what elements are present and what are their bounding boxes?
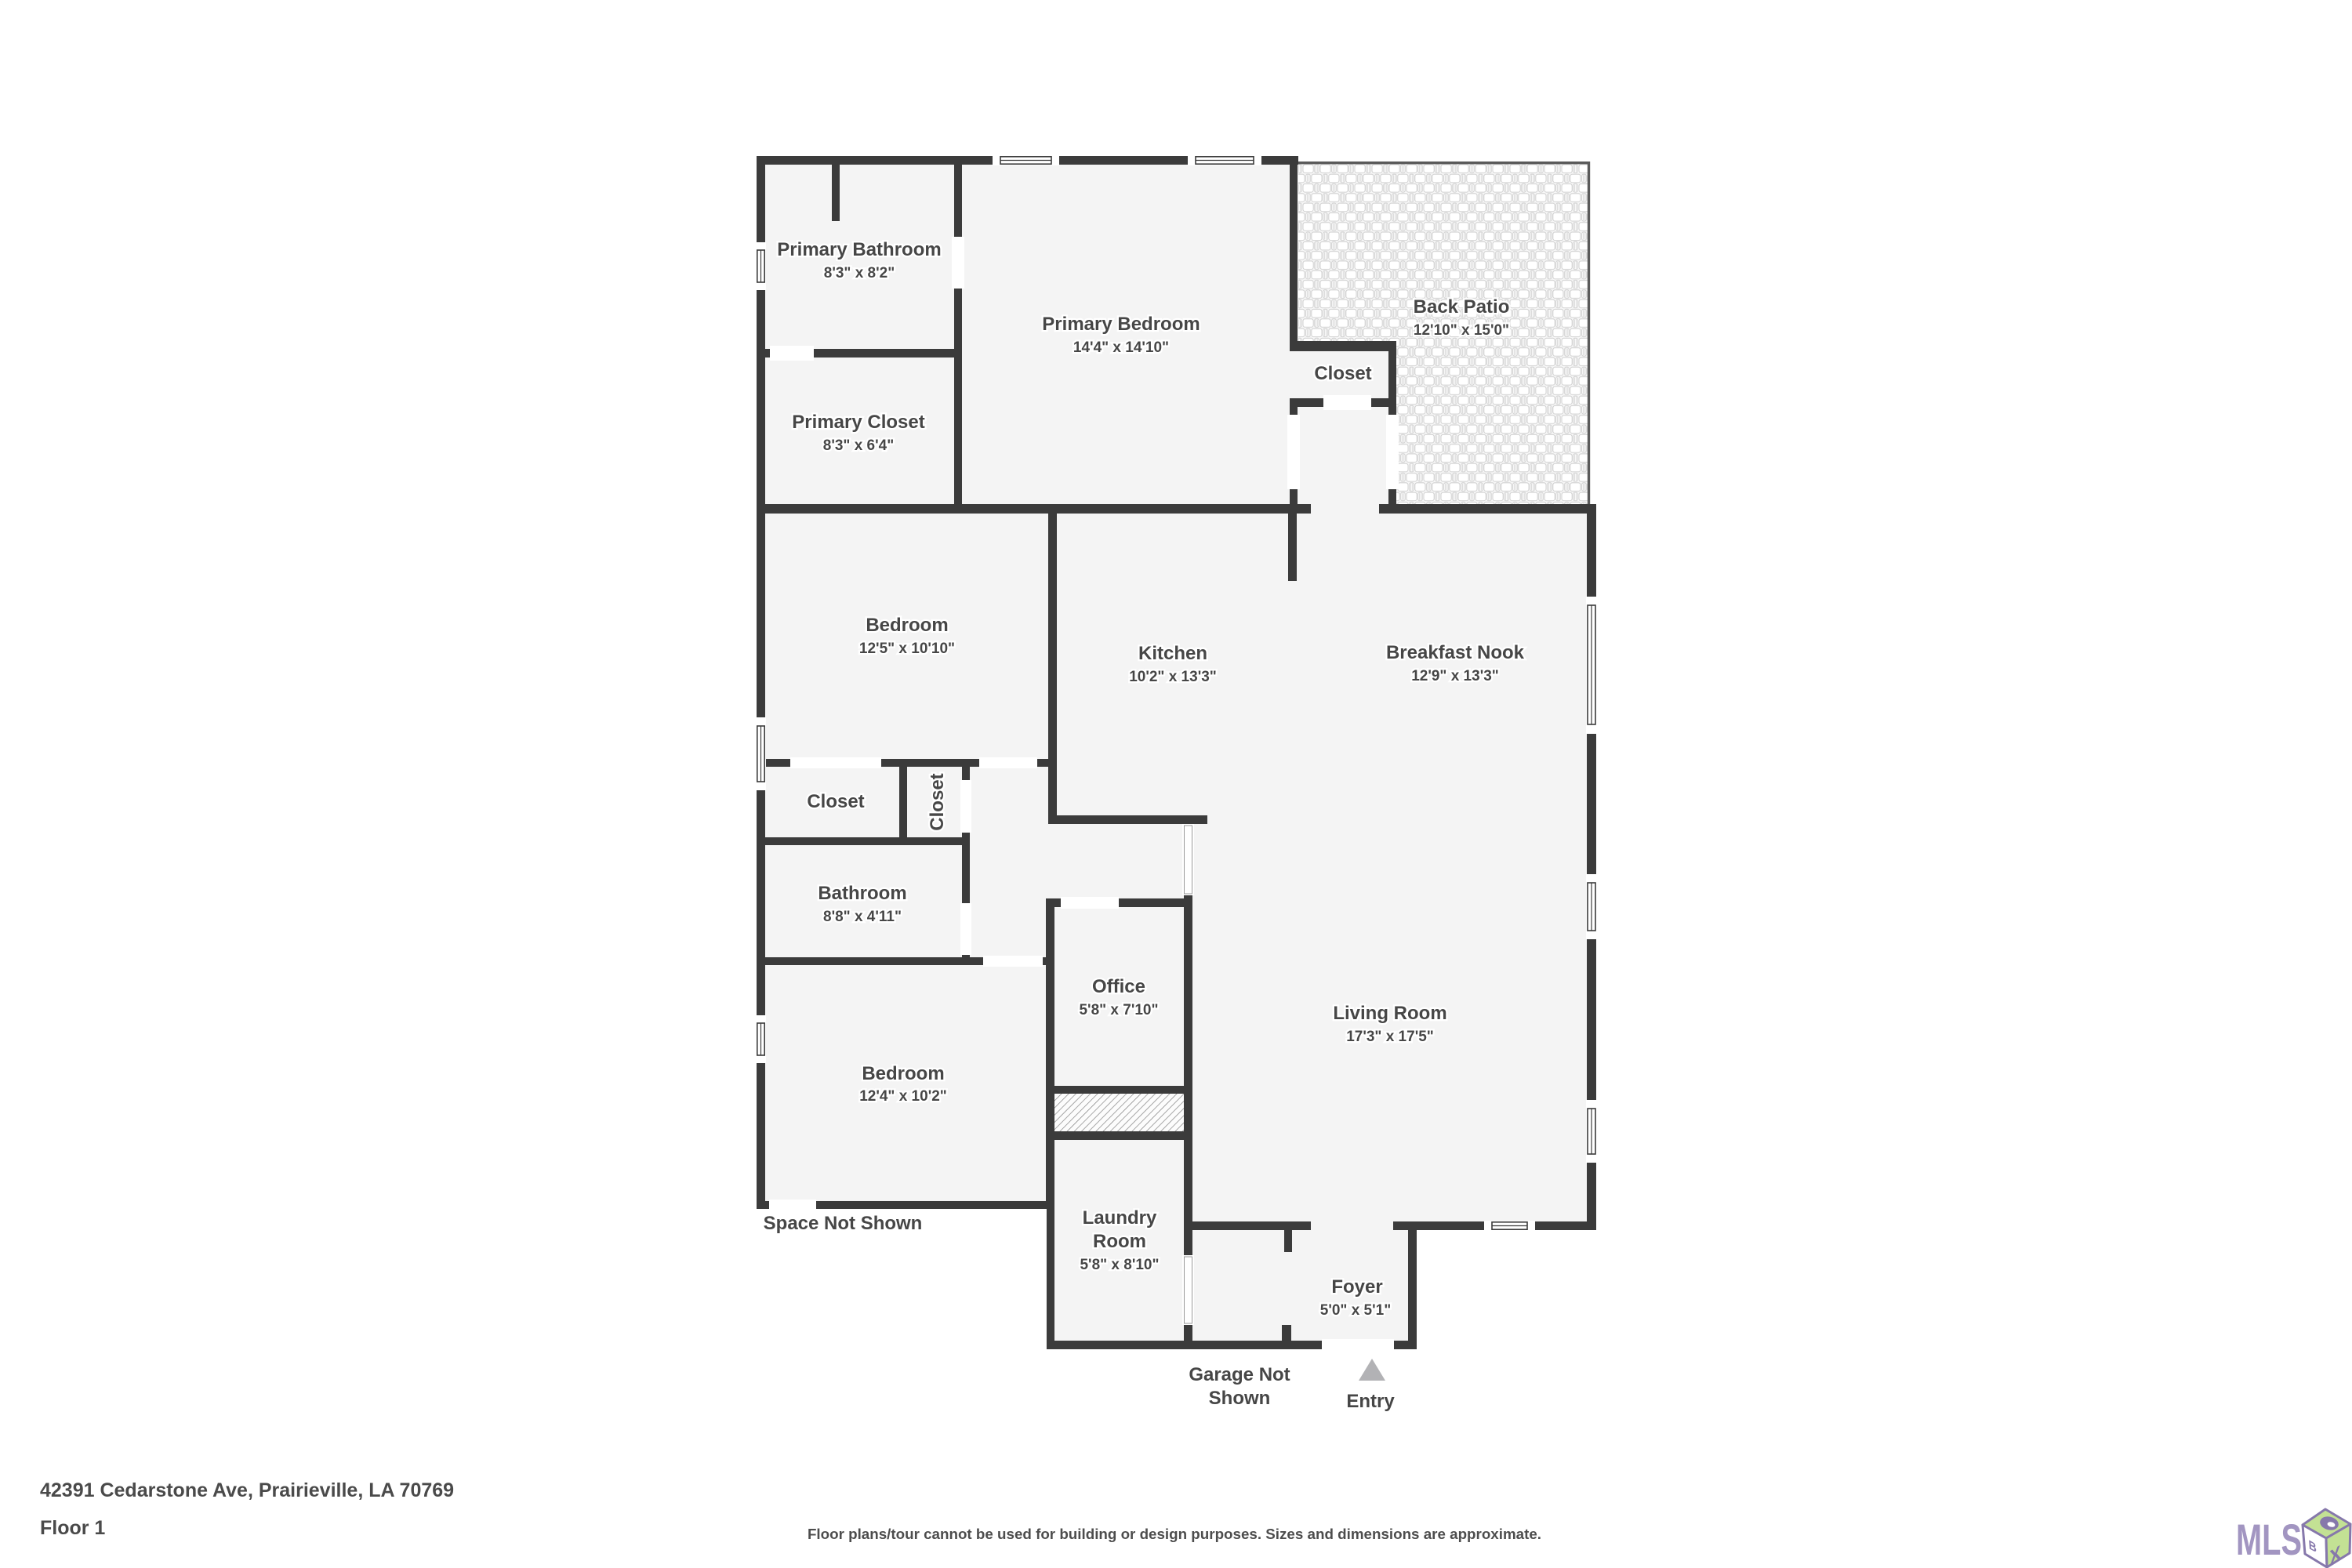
svg-text:Bathroom: Bathroom	[818, 883, 906, 904]
svg-text:12'9" x 13'3": 12'9" x 13'3"	[1411, 668, 1499, 684]
svg-text:14'4" x 14'10": 14'4" x 14'10"	[1073, 339, 1169, 356]
svg-text:Floor plans/tour cannot be use: Floor plans/tour cannot be used for buil…	[808, 1526, 1541, 1542]
svg-text:Bedroom: Bedroom	[862, 1063, 944, 1084]
svg-text:Primary Closet: Primary Closet	[792, 412, 924, 433]
svg-text:8'3" x 6'4": 8'3" x 6'4"	[823, 437, 894, 454]
svg-text:Laundry: Laundry	[1083, 1207, 1157, 1229]
svg-text:5'0" x 5'1": 5'0" x 5'1"	[1320, 1302, 1391, 1319]
svg-text:MLS: MLS	[2236, 1515, 2302, 1564]
svg-text:42391 Cedarstone Ave, Prairiev: 42391 Cedarstone Ave, Prairieville, LA 7…	[40, 1479, 454, 1501]
svg-text:Floor 1: Floor 1	[40, 1517, 105, 1539]
svg-text:5'8" x 7'10": 5'8" x 7'10"	[1079, 1002, 1158, 1018]
svg-text:Room: Room	[1093, 1231, 1146, 1252]
svg-text:Living Room: Living Room	[1333, 1003, 1446, 1024]
svg-text:8'8" x 4'11": 8'8" x 4'11"	[823, 909, 902, 925]
svg-text:12'4" x 10'2": 12'4" x 10'2"	[859, 1088, 947, 1105]
svg-text:Foyer: Foyer	[1331, 1276, 1382, 1298]
svg-text:17'3" x 17'5": 17'3" x 17'5"	[1346, 1029, 1434, 1045]
svg-text:Closet: Closet	[807, 791, 864, 812]
svg-text:Back Patio: Back Patio	[1414, 296, 1510, 318]
svg-text:10'2" x 13'3": 10'2" x 13'3"	[1129, 669, 1217, 685]
svg-text:Closet: Closet	[1314, 363, 1371, 384]
svg-text:12'5" x 10'10": 12'5" x 10'10"	[859, 641, 955, 657]
svg-text:Primary Bedroom: Primary Bedroom	[1042, 314, 1200, 335]
svg-text:Shown: Shown	[1209, 1388, 1271, 1409]
svg-text:8'3" x 8'2": 8'3" x 8'2"	[824, 265, 895, 281]
svg-text:Closet: Closet	[927, 773, 948, 830]
svg-text:12'10" x 15'0": 12'10" x 15'0"	[1414, 322, 1509, 339]
svg-text:Bedroom: Bedroom	[866, 615, 948, 636]
svg-text:5'8" x 8'10": 5'8" x 8'10"	[1080, 1257, 1159, 1273]
svg-text:Entry: Entry	[1346, 1391, 1395, 1412]
svg-text:Office: Office	[1092, 976, 1145, 997]
svg-text:Primary Bathroom: Primary Bathroom	[777, 239, 941, 260]
svg-text:Space Not Shown: Space Not Shown	[764, 1213, 923, 1234]
svg-text:Breakfast Nook: Breakfast Nook	[1386, 642, 1525, 663]
svg-text:Kitchen: Kitchen	[1138, 643, 1207, 664]
svg-text:Garage Not: Garage Not	[1189, 1364, 1290, 1385]
